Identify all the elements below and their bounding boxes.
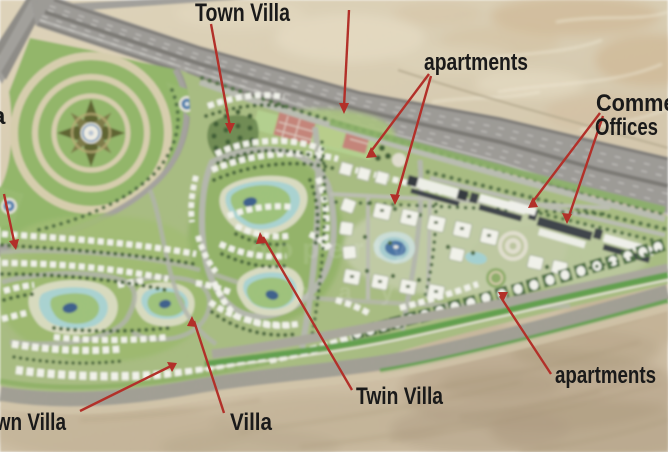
svg-text:Offices: Offices <box>595 114 658 141</box>
svg-text:Town Villa: Town Villa <box>195 0 291 27</box>
svg-text:apartments: apartments <box>424 49 528 76</box>
svg-text:Town Villa: Town Villa <box>0 409 67 436</box>
svg-text:Villa: Villa <box>230 409 273 436</box>
svg-text:Twin Villa: Twin Villa <box>356 383 444 410</box>
svg-text:Commerc: Commerc <box>596 90 668 117</box>
svg-text:a: a <box>0 103 6 130</box>
svg-text:apartments: apartments <box>555 362 656 389</box>
